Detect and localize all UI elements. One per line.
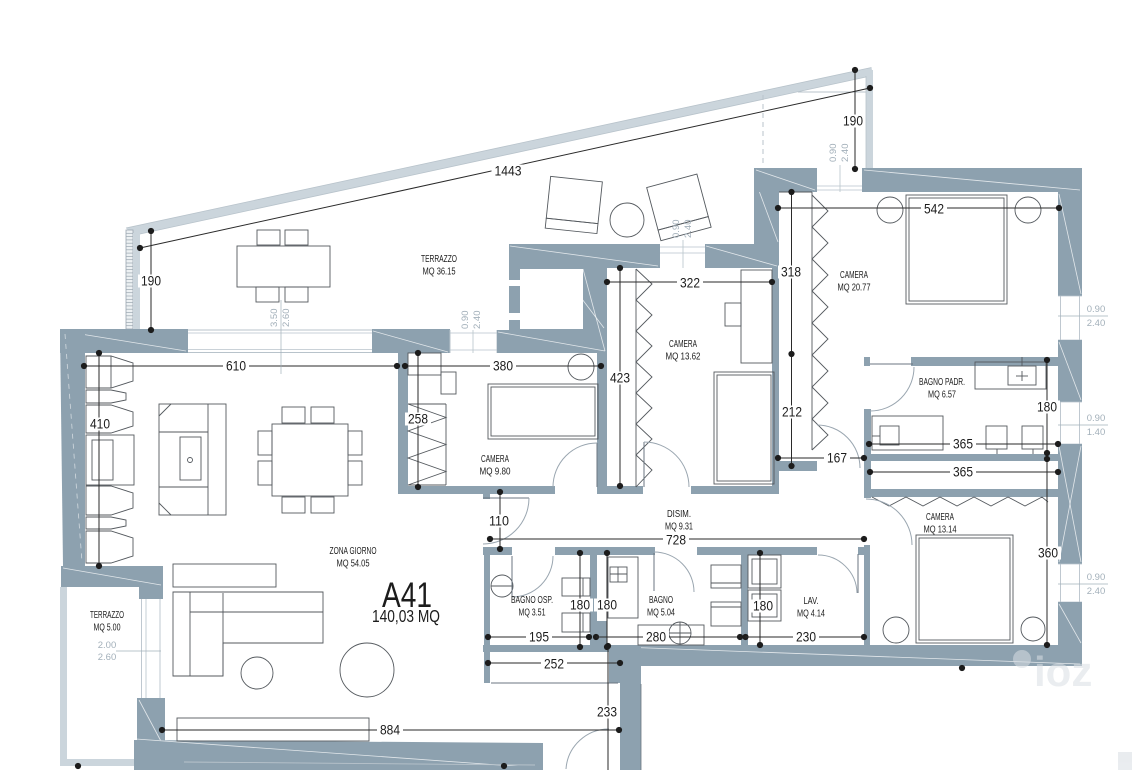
svg-text:MQ 6.57: MQ 6.57 [928, 390, 956, 401]
svg-text:610: 610 [226, 359, 246, 374]
svg-text:2.60: 2.60 [281, 309, 292, 328]
svg-text:MQ 5.00: MQ 5.00 [94, 623, 121, 634]
svg-text:365: 365 [953, 437, 973, 452]
svg-text:195: 195 [529, 630, 549, 645]
svg-text:MQ 4.14: MQ 4.14 [797, 609, 825, 620]
svg-text:0.90: 0.90 [1087, 572, 1106, 583]
svg-text:365: 365 [953, 465, 973, 480]
svg-text:1.40: 1.40 [1087, 427, 1106, 438]
svg-text:2.00: 2.00 [98, 640, 117, 651]
svg-text:0.90: 0.90 [1087, 304, 1106, 315]
svg-text:MQ 9.31: MQ 9.31 [665, 522, 693, 533]
svg-text:180: 180 [1037, 400, 1057, 415]
svg-text:230: 230 [796, 630, 816, 645]
svg-text:CAMERA: CAMERA [669, 339, 697, 350]
svg-text:0.90: 0.90 [671, 220, 682, 239]
svg-text:884: 884 [380, 723, 400, 738]
svg-text:MQ 54.05: MQ 54.05 [337, 559, 370, 570]
svg-text:252: 252 [544, 657, 564, 672]
svg-text:2.40: 2.40 [472, 311, 483, 330]
svg-text:2.60: 2.60 [98, 652, 117, 663]
svg-text:360: 360 [1038, 546, 1058, 561]
svg-text:MQ 13.62: MQ 13.62 [666, 352, 701, 363]
svg-text:318: 318 [781, 265, 801, 280]
svg-text:CAMERA: CAMERA [840, 270, 868, 281]
svg-text:ZONA GIORNO: ZONA GIORNO [330, 546, 377, 557]
svg-text:190: 190 [843, 114, 863, 129]
svg-text:2.40: 2.40 [683, 220, 694, 239]
svg-text:BAGNO: BAGNO [649, 595, 673, 606]
svg-text:380: 380 [493, 359, 513, 374]
svg-text:728: 728 [666, 533, 686, 548]
svg-text:CAMERA: CAMERA [481, 454, 509, 465]
svg-text:3.50: 3.50 [269, 309, 280, 328]
svg-text:167: 167 [827, 451, 847, 466]
svg-text:180: 180 [570, 598, 590, 613]
svg-text:258: 258 [408, 412, 428, 427]
svg-text:280: 280 [646, 630, 666, 645]
svg-text:423: 423 [610, 371, 630, 386]
svg-text:TERRAZZO: TERRAZZO [421, 254, 457, 265]
svg-text:2.40: 2.40 [1087, 586, 1106, 597]
svg-text:MQ 9.80: MQ 9.80 [480, 467, 511, 478]
svg-text:CAMERA: CAMERA [926, 512, 954, 523]
svg-text:MQ 20.77: MQ 20.77 [838, 283, 871, 294]
svg-text:410: 410 [90, 417, 110, 432]
svg-text:MQ 3.51: MQ 3.51 [519, 608, 546, 619]
svg-text:ioz: ioz [1034, 648, 1092, 695]
svg-text:212: 212 [782, 405, 802, 420]
svg-text:140,03 MQ: 140,03 MQ [372, 606, 440, 626]
svg-text:1443: 1443 [495, 164, 522, 179]
svg-text:MQ 13.14: MQ 13.14 [924, 525, 957, 536]
svg-text:MQ 36.15: MQ 36.15 [423, 267, 456, 278]
svg-text:0.90: 0.90 [828, 144, 839, 163]
svg-text:180: 180 [753, 599, 773, 614]
svg-text:DISIM.: DISIM. [667, 509, 691, 520]
svg-text:110: 110 [489, 514, 509, 529]
svg-text:MQ 5.04: MQ 5.04 [647, 608, 675, 619]
svg-text:2.40: 2.40 [1087, 318, 1106, 329]
svg-text:233: 233 [597, 705, 617, 720]
svg-text:BAGNO OSP.: BAGNO OSP. [511, 595, 553, 606]
svg-text:542: 542 [924, 202, 944, 217]
svg-text:322: 322 [680, 276, 700, 291]
svg-text:BAGNO PADR.: BAGNO PADR. [919, 377, 965, 388]
svg-text:0.90: 0.90 [1087, 413, 1106, 424]
svg-text:TERRAZZO: TERRAZZO [90, 610, 124, 621]
svg-text:180: 180 [597, 598, 617, 613]
svg-text:2.40: 2.40 [840, 144, 851, 163]
svg-text:0.90: 0.90 [460, 311, 471, 330]
svg-text:LAV.: LAV. [804, 596, 819, 607]
svg-text:190: 190 [141, 274, 161, 289]
